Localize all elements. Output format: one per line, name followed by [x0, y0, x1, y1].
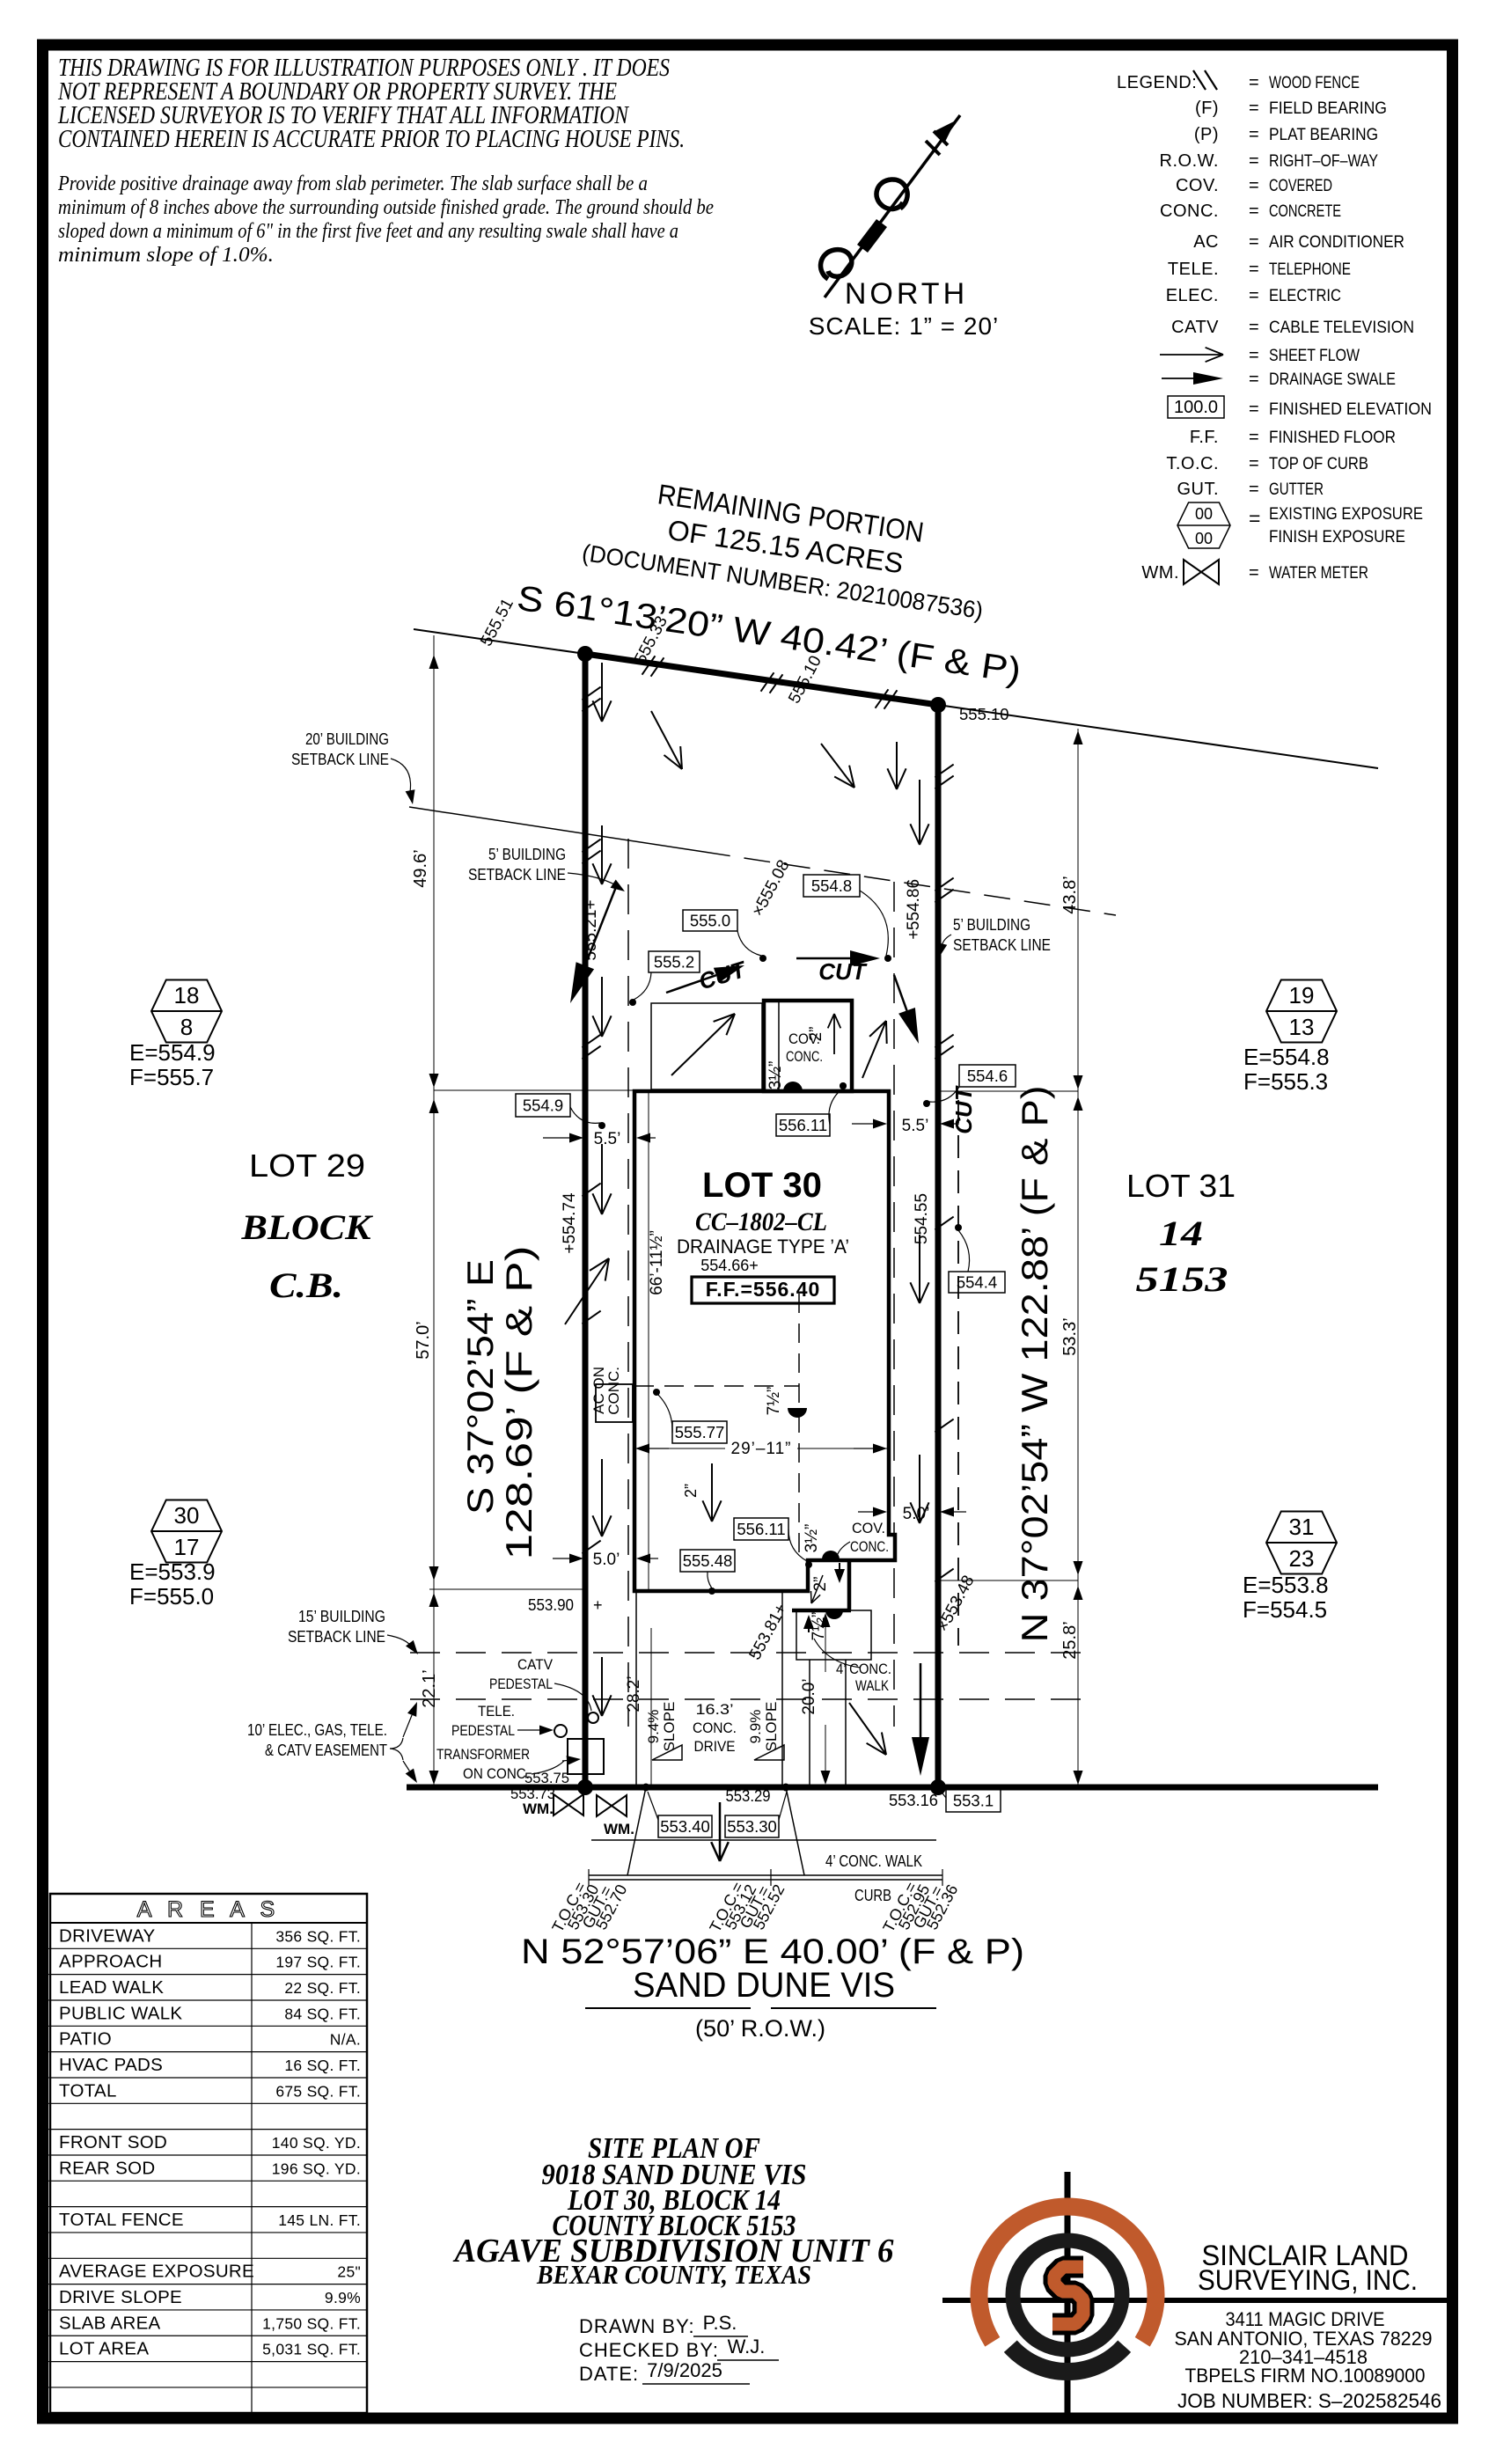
- svg-text:23: 23: [1289, 1545, 1315, 1572]
- svg-text:CATV: CATV: [1171, 318, 1219, 337]
- svg-text:AVERAGE EXPOSURE: AVERAGE EXPOSURE: [59, 2262, 254, 2282]
- svg-text:+: +: [593, 1596, 603, 1614]
- svg-text:4’ CONC. WALK: 4’ CONC. WALK: [825, 1852, 922, 1870]
- svg-text:555.77: 555.77: [675, 1423, 725, 1441]
- svg-text:APPROACH: APPROACH: [59, 1952, 162, 1972]
- svg-text:28.2’: 28.2’: [625, 1676, 643, 1712]
- svg-text:WM.: WM.: [604, 1821, 634, 1837]
- svg-text:minimum of 8 inches above the: minimum of 8 inches above the surroundin…: [58, 196, 714, 219]
- svg-text:CATV: CATV: [517, 1656, 554, 1673]
- svg-text:2”: 2”: [811, 1577, 830, 1592]
- svg-text:SETBACK LINE: SETBACK LINE: [953, 936, 1051, 954]
- svg-text:49.6’: 49.6’: [411, 849, 430, 887]
- svg-text:=: =: [1249, 151, 1259, 171]
- svg-text:5.5’: 5.5’: [902, 1117, 929, 1135]
- svg-text:1,750 SQ. FT.: 1,750 SQ. FT.: [262, 2314, 361, 2332]
- svg-text:TOP OF CURB: TOP OF CURB: [1269, 454, 1368, 473]
- svg-text:WOOD FENCE: WOOD FENCE: [1269, 73, 1360, 92]
- svg-text:14: 14: [1159, 1214, 1203, 1253]
- svg-text:18: 18: [174, 982, 200, 1008]
- svg-text:AIR CONDITIONER: AIR CONDITIONER: [1269, 232, 1404, 252]
- svg-text:7½”: 7½”: [765, 1387, 783, 1416]
- svg-text:WATER METER: WATER METER: [1269, 563, 1368, 583]
- svg-text:=: =: [1249, 454, 1259, 473]
- svg-text:5’ BUILDING: 5’ BUILDING: [488, 846, 566, 863]
- svg-text:553.30: 553.30: [727, 1817, 777, 1836]
- svg-text:7½”: 7½”: [810, 1612, 828, 1641]
- svg-text:SETBACK LINE: SETBACK LINE: [288, 1628, 385, 1646]
- svg-text:SLAB AREA: SLAB AREA: [59, 2313, 161, 2333]
- svg-text:=: =: [1249, 370, 1259, 389]
- svg-text:5.0’: 5.0’: [593, 1551, 620, 1569]
- svg-text:N 37°02’54” W 122.88’ (F &: N 37°02’54” W 122.88’ (F & P): [1014, 1086, 1055, 1643]
- svg-text:DATE:: DATE:: [579, 2363, 639, 2385]
- svg-text:555.2: 555.2: [654, 953, 694, 972]
- svg-text:HVAC PADS: HVAC PADS: [59, 2055, 163, 2075]
- svg-text:15’ BUILDING: 15’ BUILDING: [298, 1608, 385, 1625]
- svg-text:00: 00: [1195, 530, 1213, 547]
- svg-text:RIGHT–OF–WAY: RIGHT–OF–WAY: [1269, 151, 1378, 171]
- svg-text:128.69’ (F & P): 128.69’ (F & P): [498, 1246, 539, 1560]
- svg-text:16.3’: 16.3’: [696, 1701, 734, 1718]
- svg-text:& CATV EASEMENT: & CATV EASEMENT: [265, 1742, 387, 1759]
- svg-text:PATIO: PATIO: [59, 2029, 112, 2050]
- svg-text:CONC.: CONC.: [693, 1720, 737, 1736]
- svg-text:8: 8: [180, 1014, 193, 1040]
- svg-text:W.J.: W.J.: [728, 2336, 766, 2358]
- svg-text:5,031 SQ. FT.: 5,031 SQ. FT.: [262, 2341, 361, 2358]
- svg-text:P.S.: P.S.: [703, 2312, 737, 2334]
- svg-text:CUT: CUT: [950, 1085, 977, 1134]
- svg-text:197 SQ. FT.: 197 SQ. FT.: [275, 1954, 361, 1971]
- svg-text:9.9%: 9.9%: [325, 2289, 361, 2306]
- svg-text:COV.: COV.: [852, 1520, 885, 1536]
- svg-text:4’ CONC.: 4’ CONC.: [836, 1661, 891, 1677]
- svg-text:REAR SOD: REAR SOD: [59, 2158, 155, 2178]
- svg-text:5.5’: 5.5’: [594, 1130, 621, 1148]
- svg-text:F.F.=556.40: F.F.=556.40: [706, 1278, 821, 1301]
- svg-text:25.8’: 25.8’: [1060, 1621, 1080, 1659]
- svg-text:CONC.: CONC.: [605, 1367, 622, 1415]
- svg-text:=: =: [1249, 286, 1259, 305]
- svg-text:3½”: 3½”: [766, 1061, 785, 1090]
- svg-text:SLOPE: SLOPE: [763, 1702, 780, 1752]
- svg-text:17: 17: [174, 1534, 200, 1560]
- svg-text:CONTAINED HEREIN IS ACCURATE P: CONTAINED HEREIN IS ACCURATE PRIOR TO PL…: [58, 126, 685, 153]
- svg-text:20.0’: 20.0’: [800, 1678, 818, 1714]
- svg-text:SLOPE: SLOPE: [661, 1702, 678, 1752]
- svg-text:PUBLIC WALK: PUBLIC WALK: [59, 2003, 182, 2023]
- svg-text:555.0: 555.0: [690, 912, 730, 930]
- svg-text:TOTAL: TOTAL: [59, 2080, 117, 2101]
- svg-text:CONC.: CONC.: [1160, 202, 1219, 221]
- svg-text:CABLE TELEVISION: CABLE TELEVISION: [1269, 318, 1414, 337]
- svg-text:E=554.9: E=554.9: [129, 1039, 216, 1066]
- svg-text:LOT 31: LOT 31: [1126, 1168, 1236, 1204]
- svg-text:=: =: [1249, 400, 1259, 419]
- svg-text:+554.74: +554.74: [561, 1192, 579, 1254]
- svg-text:SHEET FLOW: SHEET FLOW: [1269, 346, 1360, 365]
- svg-text:(P): (P): [1194, 125, 1219, 144]
- svg-text:=: =: [1249, 428, 1259, 447]
- svg-text:=: =: [1249, 507, 1260, 530]
- svg-text:9.9%: 9.9%: [747, 1710, 764, 1744]
- svg-text:LEAD WALK: LEAD WALK: [59, 1977, 164, 1998]
- svg-text:=: =: [1249, 232, 1259, 252]
- svg-text:sloped down a minimum of 6" in: sloped down a minimum of 6" in the first…: [58, 220, 678, 243]
- svg-text:A R E A S: A R E A S: [137, 1897, 280, 1922]
- svg-text:CONCRETE: CONCRETE: [1269, 202, 1341, 221]
- svg-text:2”: 2”: [807, 1027, 825, 1042]
- svg-text:20’ BUILDING: 20’ BUILDING: [305, 730, 389, 748]
- svg-text:ON CONC.: ON CONC.: [463, 1765, 530, 1782]
- svg-text:675 SQ. FT.: 675 SQ. FT.: [275, 2082, 361, 2100]
- svg-text:COVERED: COVERED: [1269, 176, 1332, 195]
- svg-text:=: =: [1249, 563, 1259, 583]
- svg-text:E=553.9: E=553.9: [129, 1558, 216, 1585]
- svg-text:100.0: 100.0: [1174, 398, 1218, 417]
- svg-text:555.48: 555.48: [683, 1551, 733, 1570]
- svg-text:F=555.3: F=555.3: [1243, 1068, 1328, 1095]
- svg-text:minimum slope of 1.0%.: minimum slope of 1.0%.: [58, 244, 274, 267]
- svg-text:EXISTING EXPOSURE: EXISTING EXPOSURE: [1269, 504, 1423, 524]
- svg-text:DRIVE SLOPE: DRIVE SLOPE: [59, 2287, 182, 2307]
- svg-text:BEXAR COUNTY, TEXAS: BEXAR COUNTY, TEXAS: [536, 2259, 811, 2290]
- svg-text:19: 19: [1289, 982, 1315, 1008]
- svg-text:DRIVEWAY: DRIVEWAY: [59, 1925, 155, 1946]
- svg-text:CONC.: CONC.: [786, 1048, 823, 1065]
- svg-text:30: 30: [174, 1502, 200, 1529]
- svg-text:=: =: [1249, 346, 1259, 365]
- svg-text:553.90: 553.90: [528, 1596, 574, 1614]
- svg-text:00: 00: [1195, 505, 1213, 523]
- svg-text:TOTAL FENCE: TOTAL FENCE: [59, 2210, 184, 2230]
- svg-text:LOT 29: LOT 29: [249, 1148, 365, 1184]
- svg-text:13: 13: [1289, 1014, 1315, 1040]
- svg-text:JOB NUMBER: S–202582546: JOB NUMBER: S–202582546: [1177, 2389, 1441, 2412]
- svg-text:TELE.: TELE.: [478, 1703, 515, 1720]
- svg-text:LEGEND:: LEGEND:: [1117, 73, 1197, 92]
- svg-text:553.16: 553.16: [889, 1792, 938, 1809]
- svg-text:554.8: 554.8: [811, 876, 852, 895]
- svg-text:7/9/2025: 7/9/2025: [647, 2359, 722, 2381]
- svg-text:ELEC.: ELEC.: [1166, 286, 1219, 305]
- svg-text:F.F.: F.F.: [1190, 428, 1219, 447]
- svg-text:WM.: WM.: [523, 1800, 554, 1817]
- svg-text:554.6: 554.6: [967, 1067, 1008, 1085]
- svg-text:=: =: [1249, 176, 1259, 195]
- svg-text:COV.: COV.: [1176, 176, 1219, 195]
- svg-text:WM.: WM.: [1141, 563, 1179, 583]
- svg-text:SCALE: 1” = 20’: SCALE: 1” = 20’: [809, 312, 1000, 340]
- svg-text:5’ BUILDING: 5’ BUILDING: [953, 916, 1030, 934]
- svg-text:25": 25": [337, 2263, 361, 2281]
- svg-text:553.29: 553.29: [726, 1787, 771, 1805]
- svg-text:10’ ELEC., GAS, TELE.: 10’ ELEC., GAS, TELE.: [247, 1721, 387, 1739]
- svg-text:TELE.: TELE.: [1168, 260, 1219, 279]
- svg-text:=: =: [1249, 318, 1259, 337]
- svg-text:(50’ R.O.W.): (50’ R.O.W.): [695, 2015, 825, 2042]
- svg-text:CHECKED BY:: CHECKED BY:: [579, 2339, 719, 2361]
- svg-text:140 SQ. YD.: 140 SQ. YD.: [272, 2134, 361, 2152]
- svg-text:LOT 30: LOT 30: [702, 1166, 822, 1205]
- svg-text:FINISHED FLOOR: FINISHED FLOOR: [1269, 428, 1396, 447]
- svg-text:43.8’: 43.8’: [1060, 876, 1080, 913]
- svg-text:554.66+: 554.66+: [700, 1257, 759, 1274]
- svg-text:554.55: 554.55: [913, 1193, 931, 1244]
- svg-text:SETBACK LINE: SETBACK LINE: [468, 866, 566, 884]
- svg-text:29’–11”: 29’–11”: [731, 1440, 792, 1458]
- svg-text:PEDESTAL: PEDESTAL: [489, 1676, 553, 1692]
- svg-text:556.11: 556.11: [779, 1116, 827, 1134]
- svg-text:Provide positive drainage away: Provide positive drainage away from slab…: [57, 172, 648, 195]
- svg-text:CURB: CURB: [854, 1887, 891, 1904]
- svg-text:=: =: [1249, 260, 1259, 279]
- svg-text:ELECTRIC: ELECTRIC: [1269, 286, 1341, 305]
- svg-text:555.10: 555.10: [959, 705, 1009, 723]
- svg-text:SURVEYING, INC.: SURVEYING, INC.: [1198, 2264, 1418, 2296]
- svg-text:T.O.C.: T.O.C.: [1166, 454, 1219, 473]
- svg-text:+: +: [905, 929, 923, 939]
- svg-text:E=554.8: E=554.8: [1243, 1044, 1330, 1070]
- svg-text:F=555.0: F=555.0: [129, 1583, 214, 1610]
- svg-text:(F): (F): [1195, 99, 1219, 118]
- svg-text:553.1: 553.1: [953, 1792, 994, 1810]
- svg-text:145 LN. FT.: 145 LN. FT.: [278, 2211, 361, 2229]
- svg-text:GUTTER: GUTTER: [1269, 480, 1324, 499]
- svg-text:84 SQ. FT.: 84 SQ. FT.: [284, 2005, 361, 2022]
- svg-text:FIELD BEARING: FIELD BEARING: [1269, 99, 1387, 118]
- svg-text:WALK: WALK: [855, 1677, 890, 1694]
- svg-text:DRAINAGE TYPE ’A’: DRAINAGE TYPE ’A’: [677, 1236, 849, 1258]
- svg-text:553.40: 553.40: [660, 1817, 710, 1836]
- svg-text:TELEPHONE: TELEPHONE: [1269, 260, 1351, 279]
- svg-text:R.O.W.: R.O.W.: [1160, 151, 1219, 171]
- svg-text:5153: 5153: [1136, 1259, 1228, 1299]
- svg-text:NORTH: NORTH: [845, 277, 968, 311]
- svg-text:PLAT BEARING: PLAT BEARING: [1269, 125, 1378, 144]
- svg-text:BLOCK: BLOCK: [240, 1207, 373, 1247]
- svg-text:N/A.: N/A.: [330, 2031, 361, 2049]
- svg-text:=: =: [1249, 99, 1259, 118]
- svg-text:554.9: 554.9: [523, 1096, 563, 1115]
- svg-text:F=555.7: F=555.7: [129, 1064, 214, 1090]
- svg-text:31: 31: [1289, 1514, 1315, 1540]
- svg-text:196 SQ. YD.: 196 SQ. YD.: [272, 2160, 361, 2177]
- svg-text:CC–1802–CL: CC–1802–CL: [695, 1207, 827, 1236]
- svg-text:3½”: 3½”: [803, 1524, 821, 1553]
- svg-text:FRONT SOD: FRONT SOD: [59, 2132, 167, 2152]
- svg-text:GUT.: GUT.: [1177, 480, 1219, 499]
- svg-text:=: =: [1249, 202, 1259, 221]
- svg-text:FINISHED ELEVATION: FINISHED ELEVATION: [1269, 400, 1432, 419]
- svg-text:22.1’: 22.1’: [420, 1669, 439, 1707]
- svg-text:DRAINAGE SWALE: DRAINAGE SWALE: [1269, 370, 1396, 389]
- svg-text:SETBACK LINE: SETBACK LINE: [291, 751, 389, 768]
- svg-text:356 SQ. FT.: 356 SQ. FT.: [275, 1927, 361, 1945]
- svg-text:2”: 2”: [682, 1484, 700, 1498]
- svg-text:PEDESTAL: PEDESTAL: [451, 1722, 515, 1739]
- svg-text:554.4: 554.4: [957, 1273, 997, 1292]
- svg-text:66’‑11½”: 66’‑11½”: [648, 1230, 666, 1295]
- svg-text:53.3’: 53.3’: [1060, 1317, 1080, 1355]
- svg-text:E=553.8: E=553.8: [1243, 1572, 1329, 1598]
- svg-text:16 SQ. FT.: 16 SQ. FT.: [284, 2057, 361, 2074]
- svg-text:=: =: [1249, 73, 1259, 92]
- svg-text:LOT AREA: LOT AREA: [59, 2339, 149, 2359]
- svg-text:C.B.: C.B.: [269, 1265, 343, 1305]
- svg-text:FINISH EXPOSURE: FINISH EXPOSURE: [1269, 527, 1405, 546]
- svg-text:=: =: [1249, 480, 1259, 499]
- svg-text:TRANSFORMER: TRANSFORMER: [436, 1746, 530, 1763]
- svg-text:SAND DUNE VIS: SAND DUNE VIS: [633, 1966, 895, 2005]
- svg-text:57.0’: 57.0’: [414, 1321, 433, 1359]
- svg-text:=: =: [1249, 125, 1259, 144]
- svg-text:22 SQ. FT.: 22 SQ. FT.: [284, 1979, 361, 1997]
- svg-text:TBPELS FIRM NO.10089000: TBPELS FIRM NO.10089000: [1185, 2365, 1426, 2387]
- svg-text:556.11: 556.11: [737, 1520, 785, 1538]
- svg-text:554.86: 554.86: [905, 879, 923, 930]
- svg-text:DRIVE: DRIVE: [694, 1738, 736, 1755]
- svg-text:553.75: 553.75: [524, 1770, 569, 1786]
- svg-text:DRAWN BY:: DRAWN BY:: [579, 2315, 695, 2337]
- svg-text:9.4%: 9.4%: [645, 1710, 662, 1744]
- svg-text:F=554.5: F=554.5: [1243, 1596, 1327, 1623]
- svg-text:S 37°02’54” E: S 37°02’54” E: [459, 1259, 501, 1514]
- svg-text:CONC.: CONC.: [850, 1538, 889, 1555]
- svg-text:AC: AC: [1193, 232, 1219, 252]
